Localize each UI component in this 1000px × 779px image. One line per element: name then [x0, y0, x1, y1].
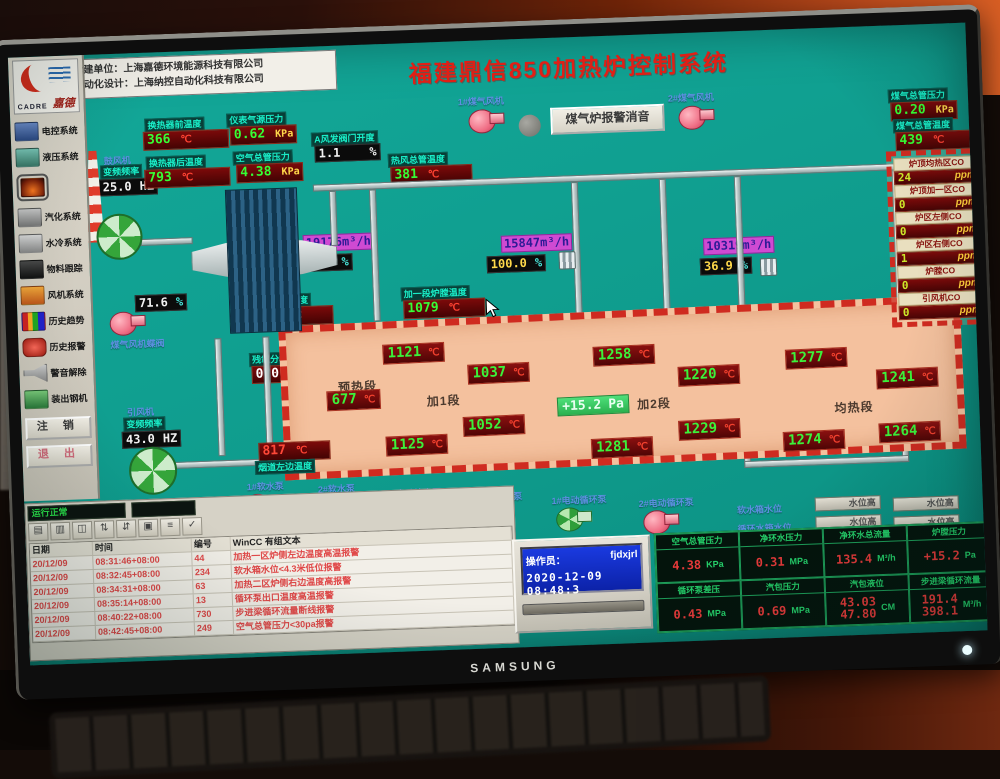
cell-value: 0.69 — [757, 605, 786, 618]
toolbar-icon-5[interactable]: ⇵ — [116, 519, 137, 538]
sidebar-item-furnace-selected[interactable] — [12, 168, 87, 205]
value: 1264 — [883, 423, 917, 442]
unit: ℃ — [180, 132, 192, 148]
chart-icon — [21, 311, 46, 331]
sidebar-item-mute[interactable]: 警音解除 — [19, 358, 94, 387]
unit: % — [369, 144, 377, 159]
value: 1 — [901, 253, 908, 265]
value: 0 — [899, 199, 906, 211]
motor-icon — [20, 285, 45, 305]
compressor-icon — [15, 147, 40, 167]
unit: KPa — [281, 164, 300, 181]
cell-unit: KPa — [706, 559, 724, 570]
value: 439 — [899, 132, 923, 149]
value: 43.0 — [126, 432, 155, 448]
value: 4.38 — [240, 164, 272, 181]
flow-mid-pct: 100.0% — [486, 254, 546, 273]
monitor: 承建单位：上海嘉德环境能源科技有限公司 自动化设计：上海纳控自动化科技有限公司 … — [0, 4, 1000, 700]
sidebar-item-label: 汽化系统 — [44, 209, 80, 223]
value: 0 — [903, 307, 910, 319]
furnace-temp: 1241℃ — [876, 367, 939, 390]
heat-exchanger-inlet — [191, 242, 232, 279]
air-main-value: 4.38KPa — [236, 162, 304, 183]
furnace-temp: 1220℃ — [677, 364, 740, 387]
unit: % — [176, 295, 184, 310]
value: 1274 — [788, 431, 822, 450]
hmi-screen: 承建单位：上海嘉德环境能源科技有限公司 自动化设计：上海纳控自动化科技有限公司 … — [8, 23, 988, 666]
furnace-temp: 1229℃ — [678, 418, 741, 441]
cell-value: 4.38 — [672, 559, 701, 572]
cell-unit: MPa — [707, 608, 726, 619]
value: 1220 — [683, 366, 717, 385]
heat-exchanger-icon[interactable] — [225, 187, 302, 334]
water-level-high-indicator: 水位高 — [893, 495, 959, 511]
cooler-icon — [18, 233, 43, 253]
hx-front-value: 366℃ — [143, 129, 230, 151]
circ-pump2-icon[interactable] — [643, 505, 680, 533]
status-bar-2 — [131, 500, 196, 517]
hx-back-value: 793℃ — [144, 167, 231, 189]
value: 0 — [902, 280, 909, 292]
cell-value2: 47.80 — [840, 607, 877, 620]
mouse-cursor — [485, 298, 500, 323]
sidebar-item-label: 装出钢机 — [51, 391, 87, 405]
alarm-no: 44 — [192, 551, 231, 565]
value: 1258 — [597, 346, 631, 365]
unit: ppm — [957, 223, 979, 236]
status-bar: 运行正常 — [27, 503, 125, 522]
furnace-temp: 1264℃ — [878, 421, 941, 444]
cell-unit: M³/h — [963, 598, 982, 609]
furnace-temp: 1121℃ — [382, 342, 445, 365]
toolbar-icon-4[interactable]: ⇅ — [94, 520, 115, 539]
alarm-no: 234 — [193, 565, 232, 579]
cell-unit: M³/h — [877, 553, 896, 564]
value: 793 — [148, 170, 172, 187]
value: 677 — [331, 391, 357, 409]
alarm-table: 日期 时间 编号 WinCC 有组文本 20/12/0908:31:46+08:… — [29, 526, 516, 644]
co-value-row: 0ppm — [899, 303, 985, 320]
machine-icon — [24, 389, 49, 409]
col-date: 日期 — [30, 542, 93, 557]
cell-unit: MPa — [789, 556, 808, 567]
logo-subtext: 嘉德 — [52, 94, 75, 111]
flow-gas-pct: 36.9% — [700, 257, 753, 276]
inst-air-value: 0.62KPa — [230, 124, 298, 145]
furnace-temp: 677℃ — [326, 389, 380, 411]
furnace-section-heat2: 加2段 — [637, 394, 671, 413]
value: 1241 — [881, 369, 915, 388]
gas-alarm-mute-button[interactable]: 煤气炉报警消音 — [550, 104, 665, 135]
sidebar-item-label: 电控系统 — [41, 123, 77, 137]
sidebar-item-history-trend[interactable]: 历史趋势 — [17, 306, 92, 335]
alarm-no: 249 — [195, 621, 234, 635]
unit: ℃ — [828, 431, 840, 449]
pipe — [659, 179, 671, 311]
value: 1277 — [790, 349, 824, 368]
value: 1281 — [596, 438, 630, 457]
value: 1121 — [387, 344, 421, 363]
furnace-temp: 1277℃ — [785, 347, 848, 370]
panel-slot — [522, 600, 644, 615]
pipe — [369, 189, 381, 321]
cell-value: +15.2 — [923, 549, 960, 562]
cell-value: 0.31 — [755, 556, 784, 569]
alarm-panel: 运行正常 ▤ ▥ ◫ ⇅ ⇵ ▣ ≡ ✓ 日期 时间 编号 WinCC 有组文本 — [24, 486, 519, 662]
pump-nozzle — [577, 511, 592, 523]
operator-name: fjdxjrl — [610, 549, 638, 565]
furnace-pressure: +15.2Pa — [557, 394, 630, 416]
computer-icon — [14, 121, 39, 141]
operator-panel: 操作员：fjdxjrl 2020-12-09 08:48:3 — [512, 535, 653, 634]
sidebar-item-hydraulic[interactable]: 液压系统 — [11, 142, 86, 171]
alarm-date: 20/12/09 — [33, 626, 96, 641]
unit: ppm — [959, 304, 981, 317]
value: 1229 — [683, 420, 717, 439]
sidebar-item-label: 物料跟踪 — [46, 261, 82, 275]
pump-nozzle — [699, 109, 714, 121]
furnace-temp: 1274℃ — [783, 429, 846, 452]
sidebar-item-history-alarm[interactable]: 历史报警 — [18, 332, 93, 361]
alarm-no: 730 — [194, 607, 233, 621]
exit-button[interactable]: 退 出 — [26, 444, 93, 468]
indicator-circle — [518, 114, 541, 137]
unit: ℃ — [364, 391, 376, 409]
furnace-section-soak: 均热段 — [834, 398, 874, 417]
unit: ℃ — [182, 170, 194, 186]
cell-unit: CM — [881, 602, 895, 613]
builder-info-box: 承建单位：上海嘉德环境能源科技有限公司 自动化设计：上海纳控自动化科技有限公司 — [66, 50, 337, 100]
pump-nozzle — [130, 315, 145, 327]
alarm-date: 20/12/09 — [31, 584, 94, 599]
unit: ℃ — [638, 346, 650, 364]
zone1-temp-value: 1079℃ — [403, 297, 486, 319]
unit: Pa — [608, 395, 624, 413]
circ-pump1-icon[interactable] — [556, 503, 593, 531]
unit: % — [341, 254, 349, 269]
cadre-logo: CADRE 嘉德 — [12, 58, 80, 114]
unit: ℃ — [508, 416, 520, 434]
unit: ℃ — [513, 364, 525, 382]
unit: ℃ — [428, 344, 440, 362]
alarm-icon — [22, 337, 47, 357]
toolbar-icon-7[interactable]: ≡ — [160, 518, 181, 537]
tank1-label: 软水箱水位 — [737, 502, 782, 517]
furnace-temp: 1281℃ — [591, 436, 654, 459]
value: 36.9 — [704, 258, 733, 274]
furnace-icon — [20, 177, 45, 197]
value: +15.2 — [562, 396, 602, 415]
grid-cell-clean-water-pressure: 净环水压力0.31MPa — [739, 528, 825, 580]
value: 0.20 — [894, 102, 926, 119]
sidebar-item-label: 历史报警 — [49, 339, 85, 353]
grid-cell-clean-water-flow: 净环水总流量135.4M³/h — [823, 525, 909, 577]
flow-mid-value: 15847m³/h — [501, 233, 573, 253]
value: 366 — [147, 132, 171, 149]
value: 817 — [262, 443, 286, 460]
unit: ℃ — [448, 300, 460, 316]
furnace-temp: 1258℃ — [592, 344, 655, 367]
col-no: 编号 — [192, 537, 231, 551]
toolbar-icon-6[interactable]: ▣ — [138, 519, 159, 538]
unit: ℃ — [922, 369, 934, 387]
pipe — [141, 237, 193, 246]
alarm-no: 13 — [194, 593, 233, 607]
value: 1079 — [407, 300, 439, 317]
unit: % — [535, 255, 543, 270]
value: 1037 — [472, 364, 506, 383]
sidebar-item-material-tracking[interactable]: 物料跟踪 — [15, 254, 90, 283]
sidebar-item-label: 警音解除 — [50, 365, 86, 379]
cell-value: 0.43 — [673, 608, 702, 621]
grid-cell-drum-pressure: 汽包压力0.69MPa — [741, 577, 827, 629]
pipe — [329, 191, 338, 246]
furnace-body: 预热段 加1段 加2段 均热段 +15.2Pa 677℃ 1121℃ 1037℃… — [278, 294, 966, 480]
blower-fan-icon[interactable] — [96, 213, 144, 261]
grid-cell-air-pressure: 空气总管压力4.38KPa — [655, 531, 741, 583]
grid-cell-circ-pump-dp: 循环泵差压0.43MPa — [657, 580, 743, 632]
a-valve-value: 1.1% — [314, 143, 381, 162]
toolbar-icon-2[interactable]: ▥ — [50, 522, 71, 541]
value: 0 — [900, 226, 907, 238]
process-value-grid: 空气总管压力4.38KPa 净环水压力0.31MPa 净环水总流量135.4M³… — [654, 521, 988, 633]
alarm-date: 20/12/09 — [31, 570, 94, 585]
flue-left-label: 烟道左边温度 — [255, 459, 315, 475]
monitor-brand-logo: SAMSUNG — [470, 658, 560, 675]
unit: ppm — [956, 196, 978, 209]
gas-fan1-pump-icon[interactable] — [468, 105, 505, 133]
value: 1052 — [468, 416, 502, 435]
cell-unit: Pa — [965, 550, 976, 560]
alarm-date: 20/12/09 — [30, 556, 93, 571]
value: 1125 — [390, 436, 424, 455]
grid-cell-beam-circ-flow: 步进梁循环流量191.4398.1M³/h — [908, 571, 987, 623]
logo-text: CADRE — [18, 103, 48, 111]
furnace-temp: 1052℃ — [463, 414, 526, 437]
operator-label: 操作员： — [525, 552, 566, 568]
unit: ℃ — [924, 423, 936, 441]
pump-nozzle — [664, 513, 679, 525]
furnace-temp: 1125℃ — [385, 434, 448, 457]
unit: KPa — [275, 126, 294, 143]
sidebar-item-fan-system[interactable]: 风机系统 — [16, 280, 91, 309]
toolbar-icon-1[interactable]: ▤ — [28, 523, 49, 542]
unit: ppm — [955, 169, 977, 182]
value: 1.1 — [318, 146, 340, 162]
cell-value2: 398.1 — [922, 604, 959, 617]
unit: ℃ — [296, 443, 308, 459]
value: 25.0 — [102, 179, 131, 195]
furnace-temp: 1037℃ — [467, 362, 530, 385]
pipe — [571, 182, 583, 314]
unit: ppm — [958, 250, 980, 263]
cell-unit: MPa — [791, 605, 810, 616]
blower-freq-label: 变频频率 — [100, 164, 143, 180]
pump-nozzle — [489, 113, 504, 125]
unit: ℃ — [431, 436, 443, 454]
unit: ℃ — [831, 349, 843, 367]
vaporizer-icon — [17, 207, 42, 227]
value: 24 — [898, 172, 912, 184]
sidebar-item-water-cooling[interactable]: 水冷系统 — [14, 228, 89, 257]
furnace-section-heat1: 加1段 — [426, 391, 460, 410]
id-fan-icon[interactable] — [128, 446, 178, 496]
co-monitor-panel: 炉顶均热区CO 24ppm 炉顶加一区CO 0ppm 炉区左侧CO 0ppm 炉… — [886, 148, 988, 328]
toolbar-icon-8[interactable]: ✓ — [182, 517, 203, 536]
pipe — [214, 338, 225, 456]
sidebar-item-steel-machine[interactable]: 装出钢机 — [20, 384, 95, 413]
gas-valve-pump-icon[interactable] — [109, 307, 146, 335]
unit: ℃ — [933, 133, 945, 149]
value: 100.0 — [491, 256, 528, 272]
power-led[interactable] — [962, 645, 972, 655]
alarm-time: 08:42:45+08:00 — [96, 622, 195, 639]
unit: ppm — [958, 277, 980, 290]
sidebar: CADRE 嘉德 电控系统 液压系统 汽化系统 水冷系统 物料跟踪 风机系统 历… — [8, 55, 100, 501]
grid-cell-drum-level: 汽包液位43.0347.80CM — [824, 574, 910, 626]
gas-fan2-pump-icon[interactable] — [678, 101, 715, 129]
sidebar-item-label: 水冷系统 — [45, 235, 81, 249]
material-icon — [19, 259, 44, 279]
operator-display: 操作员：fjdxjrl 2020-12-09 08:48:3 — [520, 543, 644, 595]
sidebar-item-electric[interactable]: 电控系统 — [10, 116, 85, 145]
grid-cell-furnace-pressure: 炉膛压力+15.2Pa — [907, 522, 988, 574]
logout-button[interactable]: 注 销 — [25, 416, 92, 440]
value: 0.62 — [234, 126, 266, 143]
unit: ℃ — [637, 438, 649, 456]
valve-icon[interactable] — [760, 258, 778, 277]
alarm-date: 20/12/09 — [32, 598, 95, 613]
cell-value: 135.4 — [836, 552, 873, 565]
water-level-high-indicator: 水位高 — [815, 495, 881, 511]
unit: ℃ — [723, 366, 735, 384]
toolbar-icon-3[interactable]: ◫ — [72, 521, 93, 540]
operator-datetime: 2020-12-09 08:48:3 — [526, 568, 639, 598]
page-title: 福建鼎信850加热炉控制系统 — [408, 43, 728, 89]
alarm-date: 20/12/09 — [32, 612, 95, 627]
alarm-no: 63 — [193, 579, 232, 593]
logo-lines-icon — [48, 66, 71, 82]
unit: ℃ — [724, 420, 736, 438]
unit: HZ — [163, 431, 178, 447]
gas-valve-label: 煤气风机蝶阀 — [110, 336, 164, 351]
sidebar-item-vaporization[interactable]: 汽化系统 — [13, 202, 88, 231]
horn-icon — [23, 363, 48, 383]
sidebar-item-label: 风机系统 — [47, 287, 83, 301]
sidebar-item-label: 液压系统 — [42, 149, 78, 163]
valve-icon[interactable] — [558, 251, 576, 270]
sidebar-item-label: 历史趋势 — [48, 313, 84, 327]
